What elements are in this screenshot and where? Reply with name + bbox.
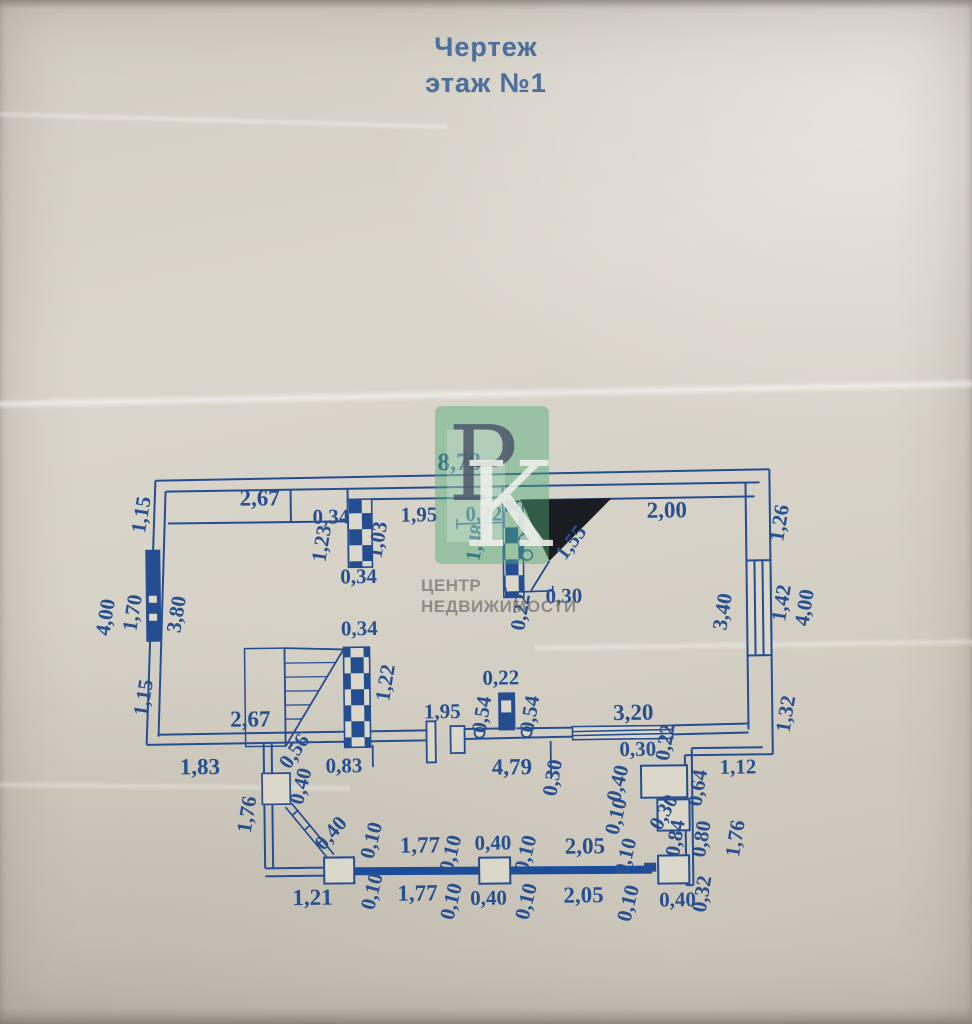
dim-label: 2,67 xyxy=(239,485,280,510)
dim-label: 0,10 xyxy=(612,882,644,924)
dim-label: 3,20 xyxy=(613,700,654,725)
dim-label: 0,10 xyxy=(435,881,467,923)
dim-label: 1,95 xyxy=(400,502,437,526)
dim-label: 1,95 xyxy=(424,699,461,723)
dim-label: 0,10 xyxy=(600,796,632,838)
dim-label: 1,76 xyxy=(720,818,750,858)
dim-label: 4,00 xyxy=(90,597,120,637)
dim-label: 0,40 xyxy=(284,765,316,807)
dim-label: 0,80 xyxy=(686,819,716,859)
dim-label: 3,40 xyxy=(707,592,737,632)
dim-label: 1,48 xyxy=(460,523,490,563)
dim-label: 4,00 xyxy=(789,588,819,628)
dim-label: 0,34 xyxy=(340,564,378,588)
dim-label: 0,22 xyxy=(650,722,680,762)
dim-label: 0,83 xyxy=(325,753,362,777)
dim-label: 0,30 xyxy=(537,758,567,798)
vent-shaft-stairs xyxy=(343,647,370,747)
dim-label: 1,26 xyxy=(764,503,794,543)
dim-label: 3,80 xyxy=(161,594,191,634)
dim-label: 1,03 xyxy=(362,520,392,560)
dim-label: 2,05 xyxy=(563,882,604,907)
terrace-post xyxy=(324,857,354,883)
dim-label: 2,00 xyxy=(647,497,688,522)
dim-label: 0,30 xyxy=(545,584,582,608)
dim-label: 0,40 xyxy=(474,830,511,854)
dim-label: 4,79 xyxy=(492,754,533,779)
dim-label: 0,40 xyxy=(309,811,351,854)
dim-label: 0,40 xyxy=(470,885,507,909)
dim-label: 1,22 xyxy=(370,663,400,703)
dim-label: 1,23 xyxy=(306,523,336,563)
central-pier xyxy=(498,692,515,730)
floor-plan-drawing: 8,782,670,341,950,222,000,340,300,340,22… xyxy=(0,0,972,1024)
dim-label: 1,83 xyxy=(180,754,221,779)
dim-label: 1,15 xyxy=(128,678,158,718)
dimension-labels: 8,782,670,341,950,222,000,340,300,340,22… xyxy=(88,445,823,931)
dim-label: 0,22 xyxy=(465,501,502,525)
dim-label: 1,77 xyxy=(400,832,441,857)
dim-label: 8,78 xyxy=(437,449,481,477)
dim-label: 1,15 xyxy=(126,495,156,535)
dim-label: 0,64 xyxy=(683,767,713,808)
dim-label: 0,56 xyxy=(274,729,315,773)
dim-label: 1,12 xyxy=(719,754,756,778)
paper-sheet: Чертеж этаж №1 xyxy=(0,0,972,1024)
terrace-post xyxy=(479,857,510,883)
scanned-floorplan-photo: Чертеж этаж №1 xyxy=(0,0,972,1024)
dim-label: 0,34 xyxy=(341,616,379,640)
dim-label: 0,10 xyxy=(355,820,387,862)
dim-label: 0,10 xyxy=(510,881,542,923)
window-left-wall xyxy=(145,550,161,642)
dim-label: 1,76 xyxy=(232,794,262,834)
dim-label: 0,22 xyxy=(482,665,519,689)
vent-shaft-top-center xyxy=(503,501,524,597)
dim-label: 1,77 xyxy=(397,880,438,905)
dim-label: 1,21 xyxy=(292,885,333,910)
dim-label: 2,67 xyxy=(230,706,271,731)
dim-label: 1,32 xyxy=(771,694,801,734)
dim-label: 2,05 xyxy=(565,833,606,858)
dim-label: 1,70 xyxy=(117,593,147,633)
dim-label: 0,22 xyxy=(505,592,535,632)
dim-label: 0,10 xyxy=(356,871,388,913)
dim-label: 0,32 xyxy=(687,874,717,914)
